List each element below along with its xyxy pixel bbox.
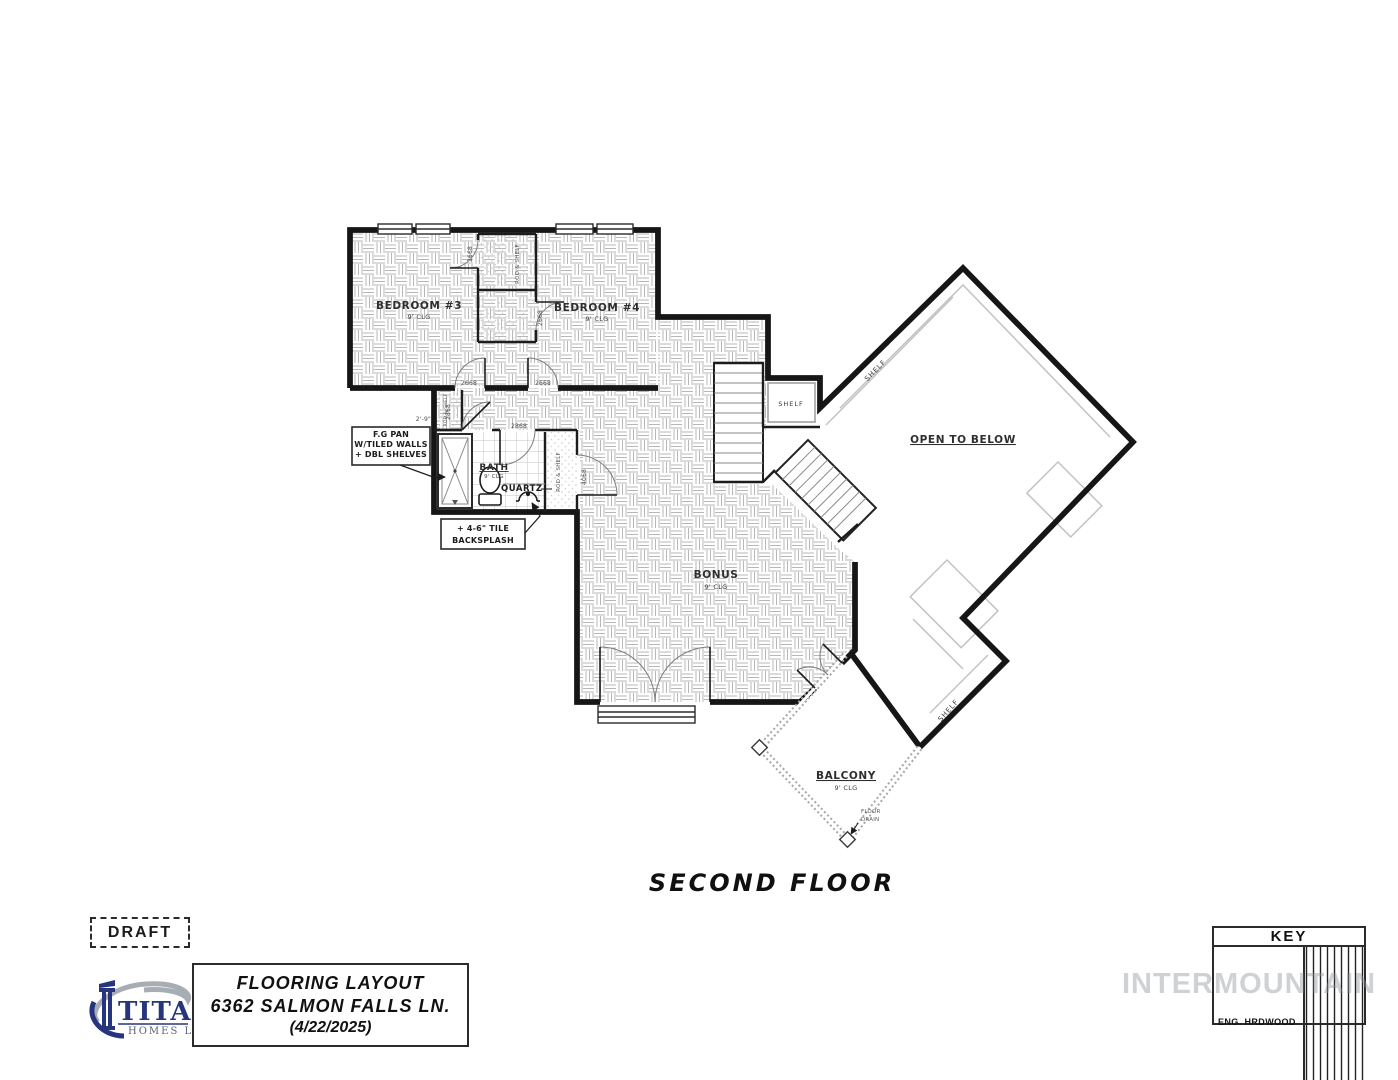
ceiling-label: 9' CLG — [408, 313, 431, 321]
logo-subtitle: HOMES LLC — [128, 1026, 196, 1037]
dim-label: 4068 — [581, 469, 588, 485]
room-label-bedroom3: BEDROOM #3 — [376, 300, 462, 312]
dim-label: 2668 — [467, 246, 474, 262]
room-label-bath: BATH — [479, 463, 508, 473]
ceiling-label: 9' CLG — [705, 583, 728, 591]
ceiling-label: 9' CLG — [586, 315, 609, 323]
hardwood-pattern-swatch — [1303, 947, 1364, 1080]
floor-drain-label: FLOOR — [861, 809, 881, 815]
room-label-open-to-below: OPEN TO BELOW — [910, 434, 1016, 446]
key-legend: KEY ENG. HRDWOOD TILE CARPET — [1212, 926, 1366, 1025]
annotation-text: + 4-6" TILE — [457, 524, 509, 533]
floor-drain-label: DRAIN — [861, 817, 879, 823]
ceiling-label: 9' CLG — [484, 474, 504, 480]
room-label-bedroom4: BEDROOM #4 — [554, 302, 640, 314]
dim-label: 2868 — [445, 404, 452, 420]
draft-label: DRAFT — [108, 924, 172, 942]
annotation-text: F.G PAN — [373, 430, 409, 439]
annotation-text: + DBL SHELVES — [355, 450, 427, 459]
key-row-hardwood: ENG. HRDWOOD — [1214, 947, 1364, 1080]
shower — [438, 434, 472, 508]
dim-label: 2'-9" — [416, 416, 431, 423]
ghost-lines-below — [826, 285, 1110, 713]
rod-shelf-label: ROD & SHELF — [556, 452, 562, 492]
quartz-label: QUARTZ — [501, 484, 543, 494]
dim-label: 2668 — [535, 380, 551, 387]
dim-label: 2868 — [511, 423, 527, 430]
ceiling-label: 9' CLG — [835, 784, 858, 792]
title-block: FLOORING LAYOUT 6362 SALMON FALLS LN. (4… — [192, 963, 469, 1047]
title-line3: (4/22/2025) — [290, 1019, 372, 1037]
floor-title: SECOND FLOOR — [649, 869, 895, 897]
title-line2: 6362 SALMON FALLS LN. — [210, 996, 450, 1017]
annotation-pan: F.G PAN W/TILED WALLS + DBL SHELVES — [352, 427, 445, 477]
key-title: KEY — [1214, 928, 1364, 947]
dim-label: 2668 — [461, 380, 477, 387]
floorplan-drawing: F.G PAN W/TILED WALLS + DBL SHELVES + 4-… — [0, 0, 1398, 1080]
logo-name: TITAN — [118, 997, 196, 1027]
annotation-text: W/TILED WALLS — [354, 440, 427, 449]
company-logo: TITAN HOMES LLC — [84, 962, 196, 1054]
room-label-balcony: BALCONY — [816, 770, 876, 782]
room-label-bonus: BONUS — [694, 569, 739, 581]
annotation-text: BACKSPLASH — [452, 536, 514, 545]
title-line1: FLOORING LAYOUT — [237, 973, 425, 994]
key-label: ENG. HRDWOOD — [1214, 947, 1303, 1080]
rod-shelf-label: ROD & SHELF — [515, 244, 521, 284]
sheet: F.G PAN W/TILED WALLS + DBL SHELVES + 4-… — [0, 0, 1398, 1080]
dim-label: 2668 — [537, 310, 544, 326]
draft-stamp: DRAFT — [90, 917, 190, 948]
shelf-label: SHELF — [778, 400, 803, 408]
